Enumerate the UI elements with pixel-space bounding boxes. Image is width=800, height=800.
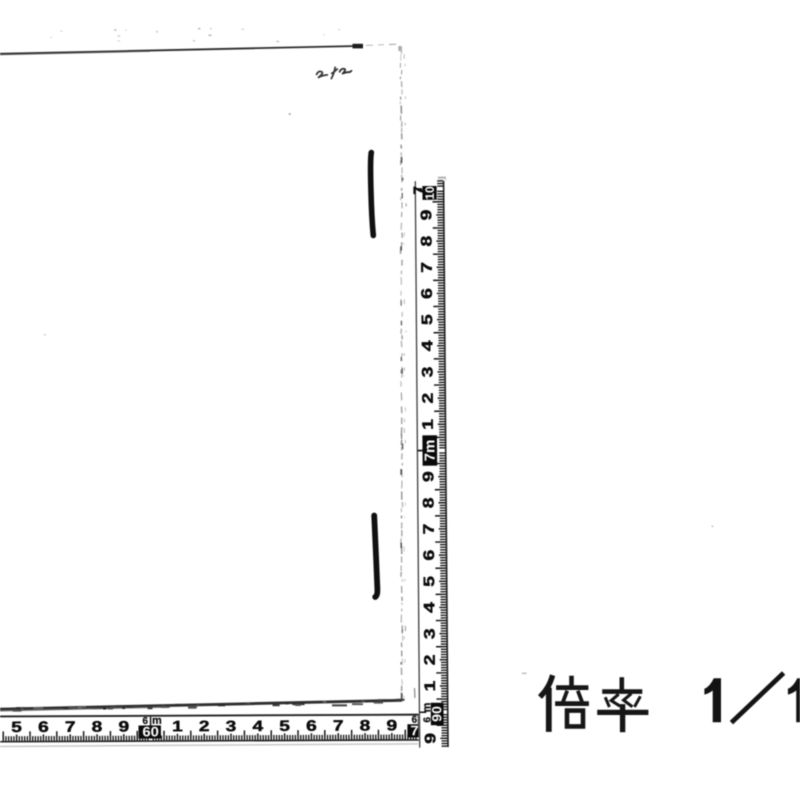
svg-text:7: 7 <box>412 186 428 194</box>
svg-text:9: 9 <box>419 471 437 482</box>
svg-text:9: 9 <box>421 733 439 744</box>
svg-text:8: 8 <box>92 718 103 735</box>
svg-text:3: 3 <box>421 628 439 639</box>
svg-text:6: 6 <box>38 718 49 735</box>
svg-text:9: 9 <box>118 718 129 735</box>
svg-text:6: 6 <box>412 715 418 726</box>
svg-text:9: 9 <box>386 716 397 733</box>
svg-text:m: m <box>421 703 433 713</box>
svg-text:1: 1 <box>419 419 437 430</box>
svg-text:60: 60 <box>142 725 159 740</box>
svg-text:5: 5 <box>420 576 438 587</box>
svg-text:7: 7 <box>420 524 437 535</box>
svg-text:1: 1 <box>421 680 439 691</box>
svg-text:4: 4 <box>252 717 263 734</box>
svg-text:6: 6 <box>418 288 436 299</box>
svg-text:6: 6 <box>422 717 433 723</box>
svg-text:5: 5 <box>418 314 436 325</box>
svg-text:6: 6 <box>142 716 148 727</box>
svg-text:3: 3 <box>226 717 237 734</box>
svg-text:6: 6 <box>420 549 438 560</box>
svg-text:7: 7 <box>418 262 435 273</box>
svg-text:2: 2 <box>419 393 436 404</box>
svg-text:4: 4 <box>418 340 436 351</box>
svg-text:7: 7 <box>333 717 344 734</box>
svg-text:5: 5 <box>279 717 290 734</box>
svg-text:5: 5 <box>11 718 22 735</box>
svg-text:8: 8 <box>420 497 438 508</box>
svg-text:8: 8 <box>417 235 435 246</box>
svg-text:6: 6 <box>306 717 317 734</box>
svg-text:8: 8 <box>360 717 371 734</box>
svg-text:7m: 7m <box>423 440 439 462</box>
svg-text:2: 2 <box>421 654 438 665</box>
svg-text:3: 3 <box>419 366 437 377</box>
svg-text:m: m <box>152 715 162 727</box>
svg-text:1: 1 <box>172 717 183 734</box>
svg-text:7: 7 <box>65 718 76 735</box>
svg-text:2: 2 <box>199 717 210 734</box>
svg-text:9: 9 <box>417 209 435 220</box>
svg-text:4: 4 <box>420 602 438 613</box>
